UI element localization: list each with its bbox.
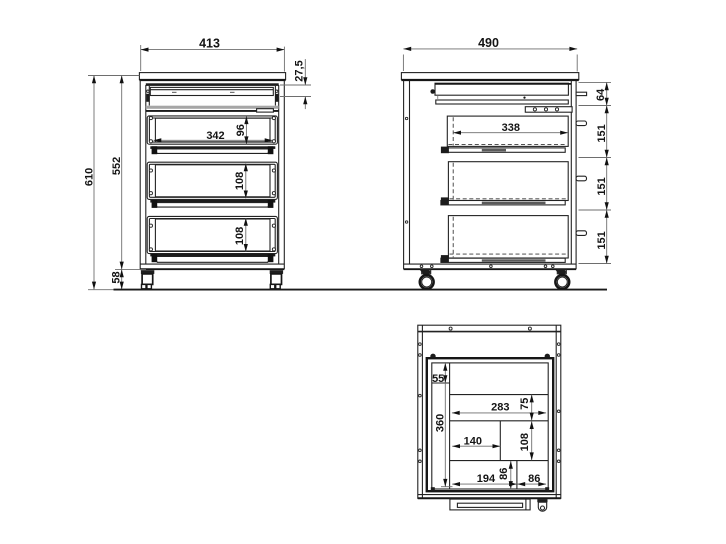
svg-text:86: 86 — [528, 473, 540, 485]
svg-text:86: 86 — [498, 468, 510, 480]
svg-text:338: 338 — [502, 122, 520, 134]
svg-text:151: 151 — [596, 124, 608, 142]
svg-text:283: 283 — [491, 401, 509, 413]
svg-text:96: 96 — [235, 124, 247, 136]
svg-text:108: 108 — [234, 227, 246, 245]
svg-text:58: 58 — [110, 271, 122, 283]
svg-text:140: 140 — [464, 435, 482, 447]
svg-text:552: 552 — [111, 157, 123, 175]
svg-text:194: 194 — [477, 473, 496, 485]
svg-text:151: 151 — [596, 177, 608, 195]
svg-text:108: 108 — [234, 172, 246, 190]
svg-text:55: 55 — [432, 373, 444, 385]
svg-text:27,5: 27,5 — [294, 60, 306, 81]
svg-text:342: 342 — [206, 130, 224, 142]
svg-text:610: 610 — [83, 168, 95, 186]
svg-text:360: 360 — [434, 414, 446, 432]
svg-text:108: 108 — [519, 433, 531, 451]
svg-text:151: 151 — [596, 231, 608, 249]
svg-text:413: 413 — [199, 37, 220, 51]
svg-text:64: 64 — [595, 88, 607, 101]
svg-text:490: 490 — [478, 36, 499, 50]
svg-text:75: 75 — [519, 398, 531, 410]
